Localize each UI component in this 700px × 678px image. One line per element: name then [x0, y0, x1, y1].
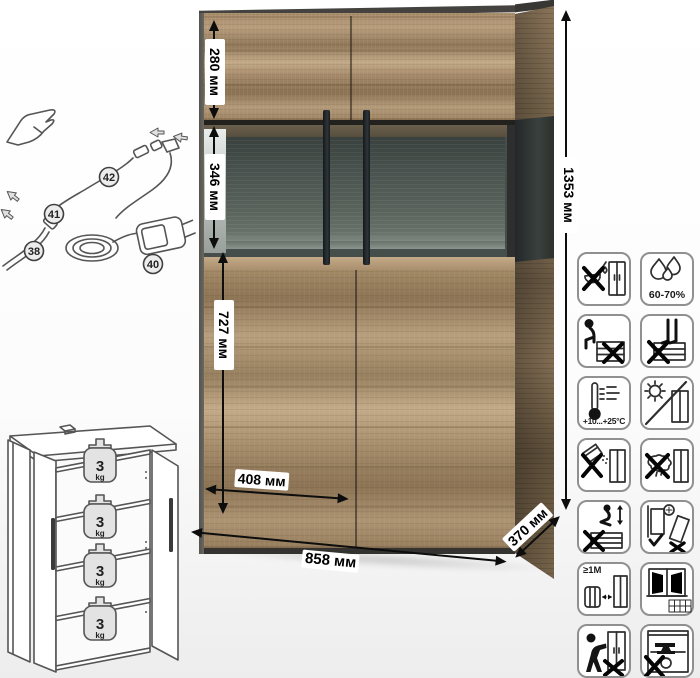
glass-lintel — [199, 125, 515, 137]
keep-1m-from-heat-icon: ≥1M — [577, 562, 631, 616]
humidity-60-70-icon: 60-70% — [640, 252, 694, 306]
dim-727-label: 727 мм — [214, 300, 234, 370]
dim-727-line — [222, 262, 224, 503]
lower-doors — [199, 270, 515, 548]
upper-door-seam — [350, 16, 352, 120]
shelf-weight: 3 kg — [84, 544, 116, 587]
no-wet-cloth-icon — [640, 438, 694, 492]
glass-frame-right — [507, 125, 515, 257]
dim-1353-arrowhead — [561, 499, 571, 510]
no-standing-glyph — [642, 316, 692, 366]
cabinet-side-panel — [515, 6, 554, 579]
no-water-spill-icon — [577, 252, 631, 306]
svg-text:kg: kg — [95, 631, 104, 640]
no-sitting-glyph — [579, 316, 629, 366]
ventilation-glyph — [642, 564, 692, 614]
dim-280-label: 280 мм — [205, 39, 225, 105]
no-wet-cloth-glyph — [642, 440, 692, 490]
no-standing-icon — [640, 314, 694, 368]
temperature-label: +10...+25°C — [579, 416, 629, 426]
svg-text:kg: kg — [95, 473, 104, 482]
svg-text:kg: kg — [95, 578, 104, 587]
no-sunlight-glyph — [642, 378, 692, 428]
dim-858-arrow-right — [495, 556, 507, 567]
dim-408-arrow-right — [337, 493, 349, 504]
power-adapter-icon — [135, 213, 197, 255]
middle-shelf-strip — [199, 257, 515, 270]
dim-280-arrowhead — [209, 108, 219, 119]
no-sitting-icon — [577, 314, 631, 368]
glass-back-panel — [207, 137, 505, 241]
distance-label: ≥1M — [583, 565, 633, 576]
care-icons-grid: 60-70% — [577, 252, 694, 678]
no-jumping-glyph — [579, 502, 629, 552]
shelf-weight: 3 kg — [84, 597, 116, 640]
dim-346-label: 346 мм — [205, 154, 225, 220]
upper-doors — [199, 13, 515, 120]
shelf-weight: 3 kg — [84, 439, 116, 482]
assembly-line-drawing: 3 kg 3 kg 3 kg 3 kg — [0, 420, 190, 678]
left-door-handle — [323, 110, 330, 265]
temperature-range-icon: +10...+25°C — [577, 376, 631, 430]
part-badge-40: 40 — [144, 255, 163, 274]
humidity-label: 60-70% — [642, 289, 692, 301]
shelf-weight: 3 kg — [84, 495, 116, 538]
led-wiring-diagram: 42 41 38 40 — [0, 98, 200, 293]
dim-1353-line — [565, 20, 567, 500]
plinth — [199, 548, 515, 554]
dim-346-arrowhead — [209, 238, 219, 249]
glass-display-section — [199, 125, 515, 257]
no-abrasive-cleaners-icon — [577, 438, 631, 492]
no-water-spill-glyph — [579, 254, 629, 304]
no-heavy-items-icon — [640, 624, 694, 678]
no-pushing-glyph — [579, 626, 629, 676]
dim-408-label: 408 мм — [234, 469, 289, 491]
anchor-to-wall-icon — [640, 500, 694, 554]
no-jumping-icon — [577, 500, 631, 554]
dim-1353-label: 1353 мм — [559, 157, 579, 233]
glass-led-glow — [207, 233, 505, 249]
no-direct-sunlight-icon — [640, 376, 694, 430]
svg-text:41: 41 — [48, 209, 60, 221]
no-pushing-icon — [577, 624, 631, 678]
product-spec-sheet: 280 мм 346 мм 727 мм 1353 мм 408 мм 858 … — [0, 0, 700, 678]
no-abrasive-glyph — [579, 440, 629, 490]
no-heavy-items-glyph — [642, 626, 692, 676]
anchor-to-wall-glyph — [642, 502, 692, 552]
part-badge-38: 38 — [25, 242, 44, 261]
ventilate-room-icon — [640, 562, 694, 616]
svg-text:40: 40 — [147, 259, 159, 271]
svg-text:38: 38 — [28, 246, 40, 258]
hand-icon — [7, 110, 55, 145]
svg-text:kg: kg — [95, 529, 104, 538]
right-door-handle — [363, 110, 370, 265]
part-badge-42: 42 — [100, 168, 119, 187]
side-glass-band — [515, 116, 554, 262]
svg-text:42: 42 — [103, 172, 115, 184]
dim-727-arrowhead — [218, 503, 228, 514]
part-badge-41: 41 — [45, 205, 64, 224]
lower-door-seam — [355, 270, 357, 548]
